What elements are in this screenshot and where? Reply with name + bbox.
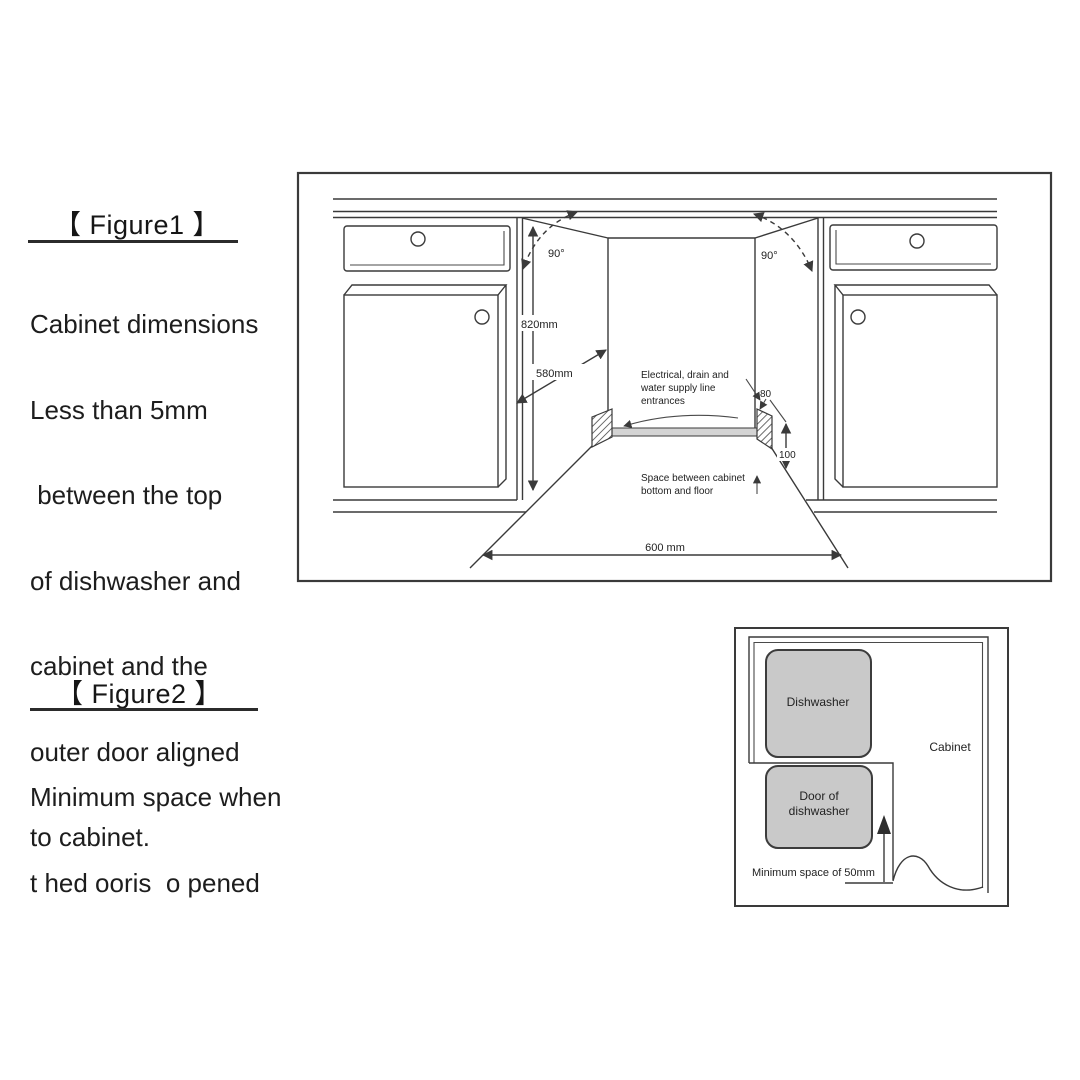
figure2-diagram: Dishwasher Door of dishwasher Cabinet Mi… bbox=[732, 625, 1012, 910]
floor-space-height-label: 100 bbox=[779, 450, 796, 461]
floor-space-note-line: Space between cabinet bbox=[641, 473, 745, 484]
figure2-heading-underline bbox=[30, 708, 258, 711]
figure2-heading: 【 Figure2 】 bbox=[30, 672, 248, 711]
right-angle-label: 90° bbox=[761, 250, 778, 262]
niche-depth-label: 580mm bbox=[536, 368, 573, 380]
entrance-width-label: 80 bbox=[760, 389, 772, 400]
figure2-caption-line: t hed ooris o pened bbox=[30, 869, 281, 898]
cabinet-label: Cabinet bbox=[929, 740, 971, 754]
floor-space-note-line: bottom and floor bbox=[641, 486, 714, 497]
entrance-note-line: water supply line bbox=[640, 383, 716, 394]
figure1-heading-underline bbox=[28, 240, 238, 243]
figure1-caption-line: Less than 5mm bbox=[30, 396, 258, 425]
niche-width-label: 600 mm bbox=[645, 542, 685, 554]
figure1-heading: 【 Figure1 】 bbox=[30, 203, 244, 242]
left-angle-label: 90° bbox=[548, 248, 565, 260]
figure1-caption-line: of dishwasher and bbox=[30, 567, 258, 596]
min-space-label: Minimum space of 50mm bbox=[752, 867, 875, 879]
figure2-caption-line: Minimum space when bbox=[30, 783, 281, 812]
entrance-note-line: entrances bbox=[641, 396, 685, 407]
entrance-note-line: Electrical, drain and bbox=[641, 370, 729, 381]
figure2-caption: Minimum space when t hed ooris o pened bbox=[30, 726, 281, 954]
niche-height-label: 820mm bbox=[521, 319, 558, 331]
niche-floor-edge bbox=[612, 428, 757, 436]
manual-page: 【 Figure1 】 Cabinet dimensions Less than… bbox=[0, 0, 1080, 1080]
figure1-caption-line: between the top bbox=[30, 481, 258, 510]
figure1-caption-line: Cabinet dimensions bbox=[30, 310, 258, 339]
door-label-line: Door of bbox=[799, 789, 839, 803]
dishwasher-label: Dishwasher bbox=[787, 695, 850, 709]
door-label-line: dishwasher bbox=[789, 804, 850, 818]
figure1-diagram: 600 mm 820mm 580mm 90° 90° Electrical, d… bbox=[295, 170, 1055, 585]
